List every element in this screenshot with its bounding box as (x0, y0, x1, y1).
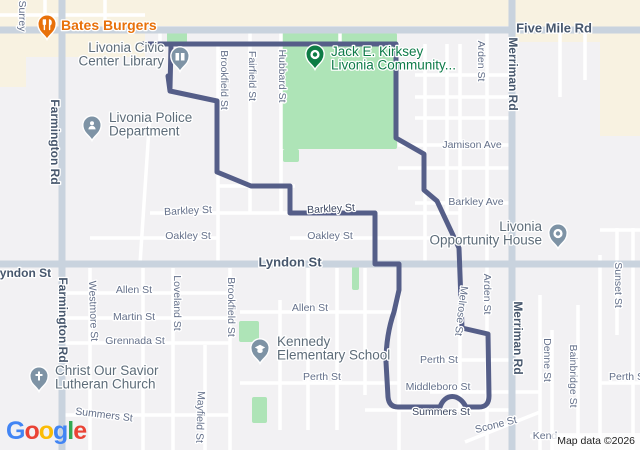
livonia-opportunity-house-label[interactable]: Opportunity House (429, 233, 542, 248)
street-label: Oakley St (165, 230, 211, 242)
street-label: Barkley St (307, 202, 355, 216)
google-logo-letter: g (53, 417, 67, 445)
street-label: Denne St (541, 338, 553, 382)
commercial-area (0, 57, 26, 87)
street-label: Barkley Ave (448, 196, 503, 208)
street-label: Arden St (481, 274, 493, 315)
street-label: Brookfield St (218, 50, 230, 110)
street-label: Mayfield St (193, 391, 207, 443)
street-label: Barkley St (164, 204, 212, 218)
street-label: Perth St (609, 371, 640, 383)
route-polyline[interactable] (170, 45, 171, 88)
police-icon (90, 121, 94, 125)
map-attribution: Map data ©2026 (552, 433, 640, 450)
graduation-cap-base (257, 349, 262, 353)
street-label: Lyndon St (0, 266, 51, 280)
bates-burgers-label[interactable]: Bates Burgers (61, 17, 157, 33)
street-label: Fairfield St (246, 51, 258, 101)
park-area (167, 32, 187, 43)
christ-our-savior-lutheran-church-label[interactable]: Lutheran Church (55, 377, 156, 392)
jack-e-kirksey-livonia-community-label[interactable]: Livonia Community... (331, 58, 456, 73)
street-label: Arden St (475, 41, 487, 82)
street-label: Surrey (16, 1, 28, 33)
livonia-police-department-label[interactable]: Department (109, 124, 180, 139)
street-label: Five Mile Rd (516, 21, 592, 36)
google-logo-letter: G (6, 417, 24, 445)
map-canvas[interactable]: SurreyFive Mile RdFarmington RdFarmingto… (0, 0, 640, 450)
google-logo-letter: e (73, 417, 86, 445)
park-area (239, 321, 259, 342)
kennedy-elementary-school-label[interactable]: Elementary School (277, 348, 390, 363)
livonia-civic-center-library-label[interactable]: Center Library (78, 54, 164, 69)
street-label: Jamison Ave (442, 139, 501, 151)
commercial-area (600, 26, 640, 136)
street-label: Perth St (420, 354, 458, 366)
street-label: Grennada St (105, 335, 165, 347)
street-label: Middleboro St (406, 381, 471, 393)
google-logo-letter: o (39, 417, 53, 445)
street-label: Allen St (116, 284, 152, 296)
park-area (252, 397, 267, 423)
map-svg[interactable]: SurreyFive Mile RdFarmington RdFarmingto… (0, 0, 640, 450)
park-area (352, 266, 359, 290)
street-label: Farmington Rd (48, 99, 62, 184)
street-label: Perth St (303, 371, 341, 383)
street-label: Summers St (412, 406, 470, 418)
street-label: Allen St (292, 302, 328, 314)
street-label: Bainbridge St (567, 344, 579, 407)
street-label: Oakley St (307, 230, 353, 242)
street-label: Brookfield St (225, 277, 237, 337)
park-area (283, 149, 299, 162)
street-label: Merriman Rd (506, 37, 520, 110)
street-label: Martin St (113, 311, 155, 323)
street-label: Merriman Rd (511, 301, 525, 374)
street-label: Hubbard St (276, 49, 288, 102)
street-label: Westmore St (86, 281, 100, 342)
street-label: Lyndon St (258, 255, 322, 270)
google-logo[interactable]: Google (6, 419, 86, 444)
street-label: Loveland St (171, 275, 183, 331)
google-logo-letter: o (24, 417, 38, 445)
street-label: Farmington Rd (56, 277, 70, 362)
street-label: Sunset St (612, 262, 624, 308)
